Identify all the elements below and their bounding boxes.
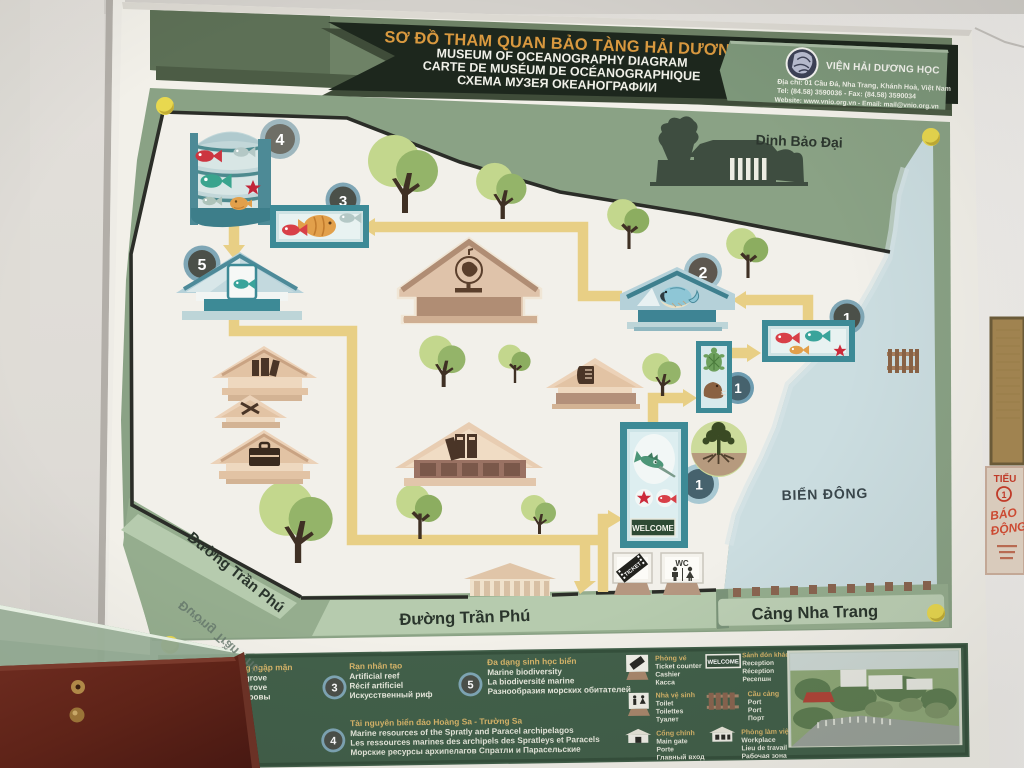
svg-text:TIẾU: TIẾU [994, 472, 1017, 485]
svg-text:1: 1 [1001, 490, 1006, 500]
